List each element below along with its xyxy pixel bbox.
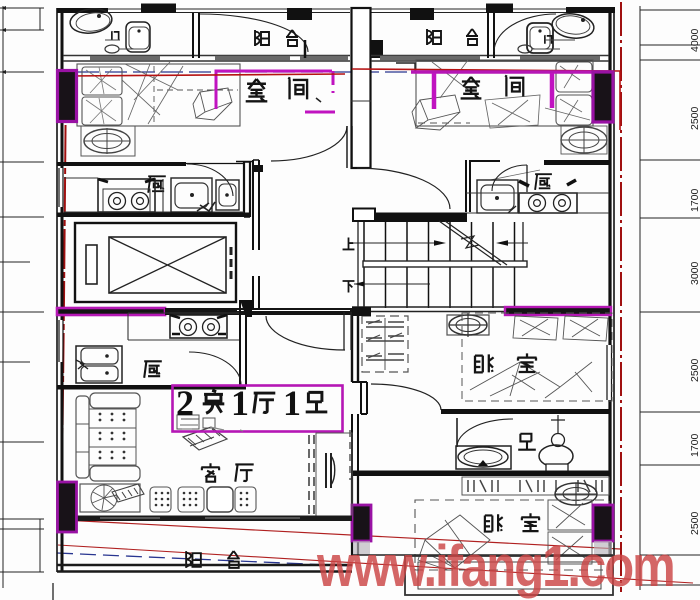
svg-text:2: 2 (176, 383, 194, 423)
svg-text:4000: 4000 (689, 28, 700, 52)
svg-text:1: 1 (231, 383, 249, 423)
svg-text:1700: 1700 (689, 433, 700, 457)
svg-text:2500: 2500 (689, 106, 700, 130)
svg-text:2500: 2500 (689, 511, 700, 535)
svg-text:www.ifang1.com: www.ifang1.com (316, 534, 674, 599)
svg-text:3000: 3000 (689, 261, 700, 285)
svg-text:1700: 1700 (689, 188, 700, 212)
svg-text:1: 1 (283, 383, 301, 423)
svg-text:2500: 2500 (689, 358, 700, 382)
